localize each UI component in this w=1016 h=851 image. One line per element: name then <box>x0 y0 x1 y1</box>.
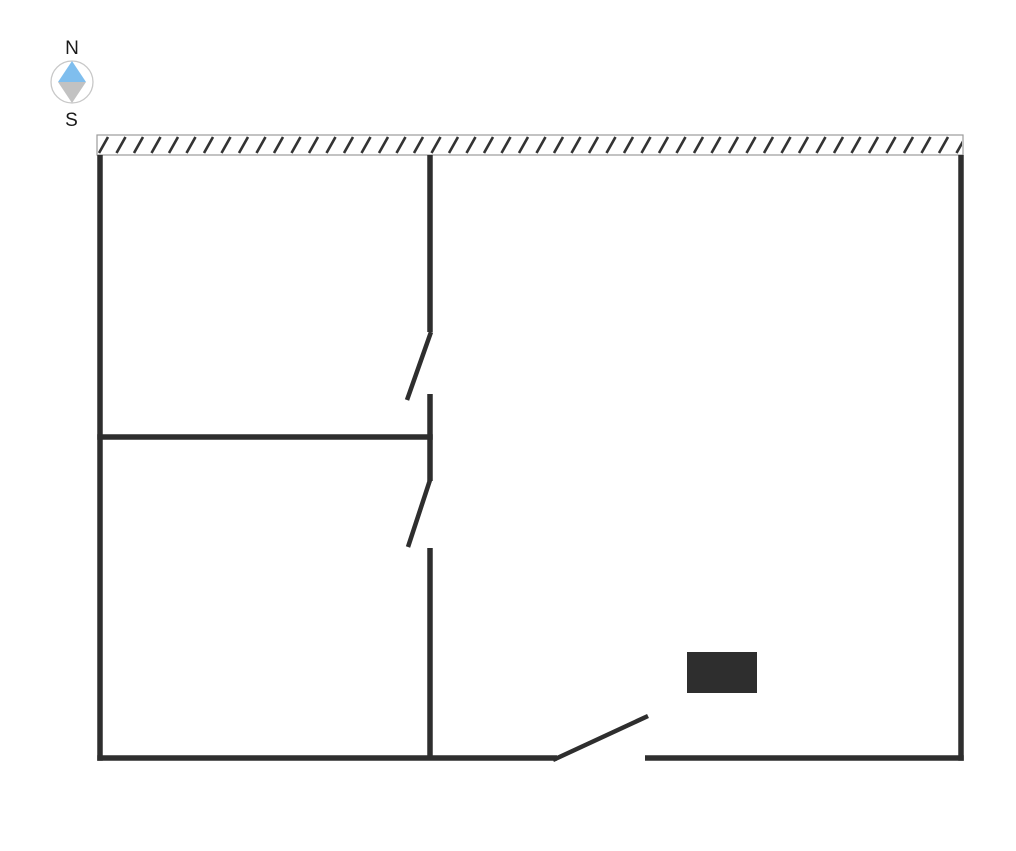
door-leaves-group <box>407 332 648 760</box>
floor-plan-svg: N S <box>0 0 1016 851</box>
north-hatched-wall <box>97 135 966 155</box>
compass-north-label: N <box>65 38 79 59</box>
compass-south-label: S <box>65 110 78 131</box>
door-leaf-upper <box>407 332 431 400</box>
door-leaf-middle <box>408 480 430 547</box>
floor-plan-canvas: N S <box>0 0 1016 851</box>
walls-group <box>97 155 964 761</box>
compass: N S <box>51 38 93 131</box>
door-leaf-south <box>553 716 648 760</box>
furniture-block <box>687 652 757 693</box>
